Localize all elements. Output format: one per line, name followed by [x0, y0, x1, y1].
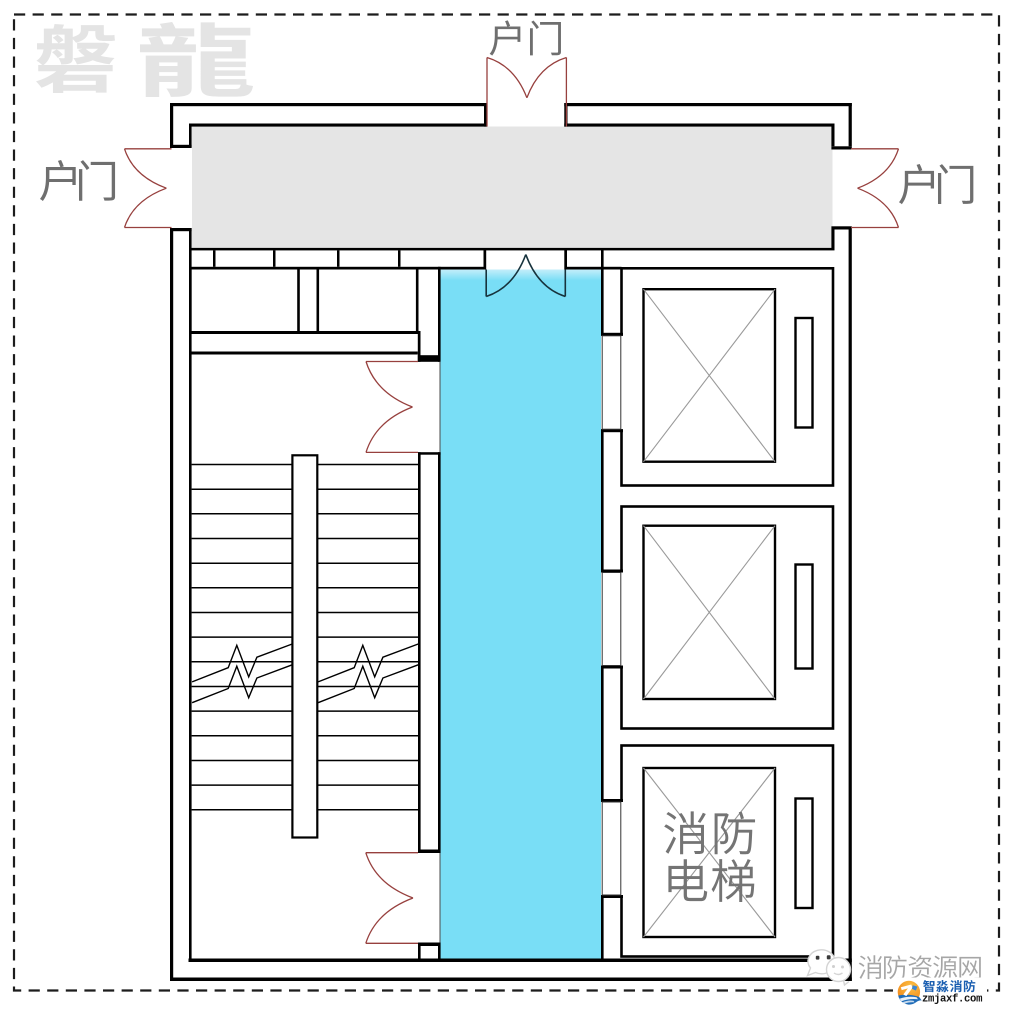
svg-text:zmjaxf.com: zmjaxf.com — [922, 993, 982, 1005]
